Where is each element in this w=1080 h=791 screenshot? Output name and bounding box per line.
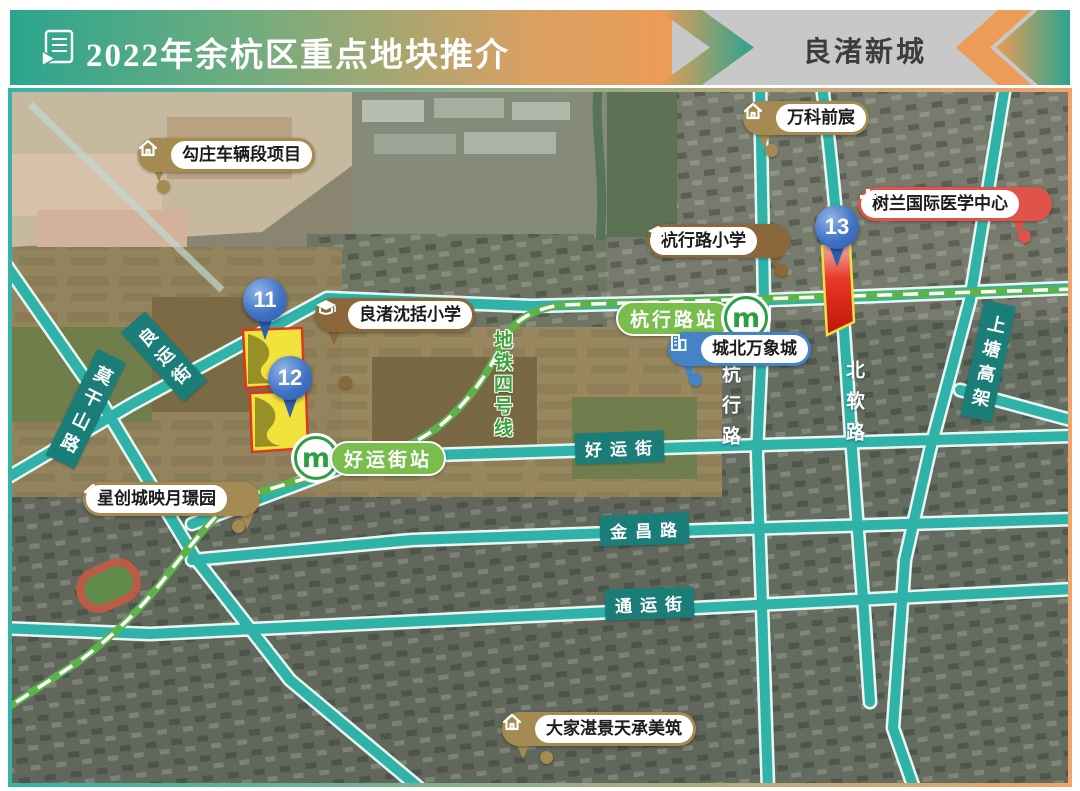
home-icon (141, 141, 169, 169)
poi-label: 良渚沈括小学 (348, 301, 472, 329)
medical-cross-icon (1021, 190, 1049, 218)
header-bar: 2022年余杭区重点地块推介 良渚新城 (10, 10, 1070, 85)
poi-xingchuangcheng-yingyue: 星创城映月璟园 (83, 482, 260, 516)
poi-label: 星创城映月璟园 (86, 485, 227, 513)
poi-label: 勾庄车辆段项目 (171, 141, 312, 169)
pin-number: 11 (243, 278, 287, 322)
home-icon (505, 715, 533, 743)
poi-label: 树兰国际医学中心 (861, 190, 1019, 218)
location-dot (1018, 230, 1031, 243)
page-title: 2022年余杭区重点地块推介 (86, 28, 510, 76)
home-icon (746, 104, 774, 132)
document-icon (40, 29, 78, 67)
location-dot (339, 376, 352, 389)
slide: 2022年余杭区重点地块推介 良渚新城 (0, 0, 1080, 791)
graduation-cap-icon (318, 301, 346, 329)
poi-shulan-medical-center: 树兰国际医学中心 (858, 187, 1052, 221)
graduation-cap-icon (759, 227, 787, 255)
poi-label: 城北万象城 (701, 335, 808, 363)
road-label-tongyun-street: 通运街 (604, 586, 694, 620)
road-label-haoyun-street: 好运街 (574, 430, 664, 464)
building-icon (671, 335, 699, 363)
location-dot (540, 751, 553, 764)
road-label-jinchang-road: 金昌路 (599, 512, 689, 546)
pin-number: 12 (268, 356, 312, 400)
location-dot (689, 373, 702, 386)
poi-gouzhuang-depot: 勾庄车辆段项目 (138, 138, 315, 172)
station-label: 好运街站 (330, 441, 446, 476)
tab-region[interactable]: 良渚新城 (710, 30, 1020, 70)
road-label-beiruan-road: 北软路 (840, 360, 867, 453)
location-dot (775, 264, 788, 277)
road-label-hangxing-road: 杭行路 (716, 364, 743, 457)
home-icon (229, 485, 257, 513)
pin-number: 13 (815, 205, 859, 249)
plot-marker-13: 13 (815, 205, 859, 271)
poi-chengbei-mixc-mall: 城北万象城 (668, 332, 811, 366)
map-frame: 良运街 莫干山路 地铁四号线 好运街 金昌路 通运街 杭行路 北软路 上塘高架 … (8, 88, 1072, 787)
poi-dajia-zhanjing: 大家湛景天承美筑 (502, 712, 696, 746)
poi-hangxinglu-primary-school: 杭行路小学 (647, 224, 790, 258)
satellite-map: 良运街 莫干山路 地铁四号线 好运街 金昌路 通运街 杭行路 北软路 上塘高架 … (12, 92, 1068, 783)
location-dot (765, 144, 778, 157)
poi-label: 大家湛景天承美筑 (535, 715, 693, 743)
plot-marker-12: 12 (268, 356, 312, 422)
location-dot (232, 520, 245, 533)
location-dot (157, 180, 170, 193)
station-haoyunjie: m 好运街站 (294, 436, 446, 480)
metro-line-4-label: 地铁四号线 (488, 330, 515, 440)
poi-vanke-qianchen: 万科前宸 (743, 101, 869, 135)
plot-marker-11: 11 (243, 278, 287, 344)
poi-liangzhu-shenkuo-primary-school: 良渚沈括小学 (315, 298, 475, 332)
poi-label: 万科前宸 (776, 104, 866, 132)
station-label: 杭行路站 (616, 301, 732, 336)
